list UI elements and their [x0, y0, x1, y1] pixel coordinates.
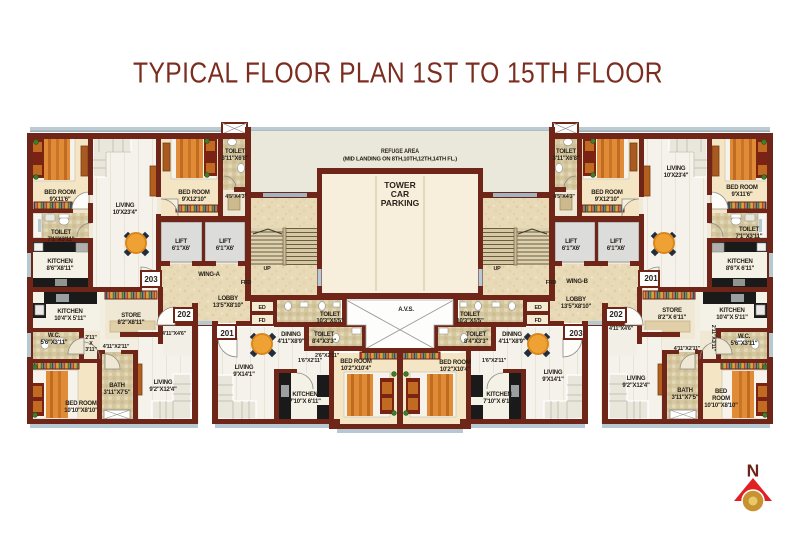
svg-text:9'X11'6": 9'X11'6" [49, 197, 70, 203]
svg-text:TOILET: TOILET [556, 149, 577, 155]
svg-text:2'6"X2'11": 2'6"X2'11" [315, 353, 340, 359]
svg-text:REFUGE AREA: REFUGE AREA [381, 148, 419, 155]
svg-text:201: 201 [644, 274, 658, 283]
svg-text:6'1"X6': 6'1"X6' [562, 246, 581, 252]
svg-text:ED: ED [534, 305, 541, 311]
svg-text:TOILET: TOILET [739, 227, 760, 233]
svg-text:LIVING: LIVING [544, 370, 563, 376]
svg-text:WING-B: WING-B [566, 279, 588, 285]
svg-text:LIVING: LIVING [235, 365, 254, 371]
svg-text:7'10"X 6'11": 7'10"X 6'11" [289, 399, 321, 405]
svg-text:4'11"X8'9": 4'11"X8'9" [499, 339, 526, 345]
svg-text:10'3"X5'5": 10'3"X5'5" [456, 319, 484, 325]
svg-text:FD: FD [259, 318, 266, 324]
svg-text:TOILET: TOILET [320, 312, 341, 318]
svg-text:4'5"X4'3": 4'5"X4'3" [225, 194, 247, 200]
svg-text:5'6"X3'11": 5'6"X3'11" [41, 340, 68, 346]
svg-text:10'4"X 5'11": 10'4"X 5'11" [54, 316, 86, 322]
svg-text:4'11"X2'11": 4'11"X2'11" [674, 346, 701, 352]
svg-text:BATH: BATH [109, 383, 124, 389]
svg-text:4'11"X8'9": 4'11"X8'9" [278, 339, 305, 345]
svg-text:8'6"X 6'11": 8'6"X 6'11" [726, 266, 755, 272]
svg-text:8'6"X8'11": 8'6"X8'11" [47, 266, 74, 272]
svg-text:LIFT: LIFT [610, 239, 622, 245]
svg-text:W.C.: W.C. [738, 334, 751, 340]
svg-text:N: N [747, 461, 760, 481]
svg-text:KITCHEN: KITCHEN [486, 392, 511, 398]
svg-text:ROOM: ROOM [712, 396, 730, 402]
svg-text:10'3"X5'5": 10'3"X5'5" [316, 319, 344, 325]
svg-text:7'1"X3'11": 7'1"X3'11" [48, 237, 75, 243]
svg-text:(MID LANDING ON 8TH,10TH,12TH,: (MID LANDING ON 8TH,10TH,12TH,14TH FL.) [343, 157, 457, 163]
svg-text:7'10"X 6'11": 7'10"X 6'11" [483, 399, 515, 405]
svg-text:202: 202 [609, 310, 623, 319]
svg-text:LIFT: LIFT [175, 239, 187, 245]
svg-text:4'11"X4'6": 4'11"X4'6" [162, 331, 187, 337]
svg-text:W.C.: W.C. [48, 333, 61, 339]
svg-text:TOILET: TOILET [314, 332, 335, 338]
svg-text:BED ROOM: BED ROOM [65, 401, 97, 407]
svg-text:KITCHEN: KITCHEN [47, 259, 72, 265]
svg-text:3'11": 3'11" [85, 347, 97, 353]
svg-text:KITCHEN: KITCHEN [727, 259, 752, 265]
svg-text:203: 203 [569, 329, 583, 338]
svg-text:TOILET: TOILET [225, 149, 246, 155]
svg-text:DINING: DINING [281, 332, 301, 338]
svg-text:TOILET: TOILET [460, 312, 481, 318]
svg-text:10'X23'4": 10'X23'4" [113, 210, 138, 216]
svg-text:9'X14'1": 9'X14'1" [542, 377, 564, 383]
svg-text:LIFT: LIFT [565, 239, 577, 245]
svg-text:LOBBY: LOBBY [218, 296, 238, 302]
svg-text:6'1"X6': 6'1"X6' [607, 246, 626, 252]
svg-text:UP: UP [493, 266, 501, 272]
svg-text:4'11"X4'6": 4'11"X4'6" [609, 326, 634, 332]
svg-text:STORE: STORE [662, 308, 682, 314]
svg-text:9'X11'6": 9'X11'6" [731, 192, 752, 198]
svg-text:8'2"X 6'11": 8'2"X 6'11" [658, 315, 687, 321]
svg-text:BED ROOM: BED ROOM [726, 185, 758, 191]
svg-text:2'11"X3'11": 2'11"X3'11" [710, 325, 716, 352]
svg-text:LIVING: LIVING [116, 203, 135, 209]
svg-text:FD: FD [535, 318, 542, 324]
svg-text:10'X23'4": 10'X23'4" [664, 173, 689, 179]
svg-text:KITCHEN: KITCHEN [57, 309, 82, 315]
svg-text:DINING: DINING [502, 332, 522, 338]
svg-text:3'11"X6'8": 3'11"X6'8" [553, 156, 580, 162]
svg-text:LIVING: LIVING [667, 166, 686, 172]
svg-text:TYPICAL FLOOR PLAN 1ST TO 15TH: TYPICAL FLOOR PLAN 1ST TO 15TH FLOOR [133, 58, 663, 90]
svg-text:KITCHEN: KITCHEN [719, 308, 744, 314]
svg-text:BED ROOM: BED ROOM [44, 190, 76, 196]
svg-text:TOILET: TOILET [466, 332, 487, 338]
svg-text:4'11"X2'11": 4'11"X2'11" [103, 344, 130, 350]
svg-text:LIVING: LIVING [154, 380, 173, 386]
svg-text:8'4"X3'3": 8'4"X3'3" [464, 339, 488, 345]
svg-text:10'10"X8'10": 10'10"X8'10" [704, 403, 738, 409]
svg-text:203: 203 [144, 275, 158, 284]
svg-text:UP: UP [263, 266, 271, 272]
svg-text:9'2"X12'4": 9'2"X12'4" [149, 387, 177, 393]
svg-text:6'1"X6': 6'1"X6' [216, 246, 235, 252]
svg-text:KITCHEN: KITCHEN [292, 392, 317, 398]
svg-text:13'5"X8'10": 13'5"X8'10" [213, 303, 244, 309]
svg-text:9'X12'10": 9'X12'10" [182, 197, 207, 203]
svg-text:BED ROOM: BED ROOM [591, 190, 623, 196]
svg-text:10'4"X 5'11": 10'4"X 5'11" [716, 315, 748, 321]
svg-text:FRD: FRD [546, 280, 557, 286]
svg-text:201: 201 [220, 329, 234, 338]
svg-text:BED ROOM: BED ROOM [340, 359, 372, 365]
svg-text:LIFT: LIFT [219, 239, 231, 245]
svg-text:10'2"X10'4": 10'2"X10'4" [341, 366, 372, 372]
svg-text:PARKING: PARKING [381, 198, 420, 208]
svg-text:10'10"X8'10": 10'10"X8'10" [64, 408, 98, 414]
svg-text:10'2"X10'4": 10'2"X10'4" [440, 367, 471, 373]
svg-text:LIVING: LIVING [627, 376, 646, 382]
svg-text:LOBBY: LOBBY [566, 297, 586, 303]
svg-text:WING-A: WING-A [198, 272, 220, 278]
svg-text:6'1"X6': 6'1"X6' [172, 246, 191, 252]
svg-text:FRD: FRD [241, 280, 252, 286]
svg-text:BED ROOM: BED ROOM [178, 190, 210, 196]
svg-text:STORE: STORE [121, 313, 141, 319]
svg-text:4'5"X4'3": 4'5"X4'3" [553, 194, 575, 200]
svg-text:3'11"X7'5": 3'11"X7'5" [672, 395, 699, 401]
svg-text:9'2"X12'4": 9'2"X12'4" [622, 383, 650, 389]
svg-text:3'11"X7'5": 3'11"X7'5" [104, 390, 131, 396]
svg-text:9'X12'10": 9'X12'10" [595, 197, 620, 203]
svg-text:9'X14'1": 9'X14'1" [233, 372, 255, 378]
svg-text:BATH: BATH [677, 388, 692, 394]
svg-text:8'4"X3'3": 8'4"X3'3" [312, 339, 336, 345]
svg-text:7'1"X3'11": 7'1"X3'11" [736, 234, 763, 240]
svg-text:8'2"X8'11": 8'2"X8'11" [118, 320, 145, 326]
svg-text:ED: ED [258, 305, 265, 311]
svg-text:TOILET: TOILET [51, 230, 72, 236]
svg-text:202: 202 [177, 310, 191, 319]
svg-text:13'5"X8'10": 13'5"X8'10" [561, 304, 592, 310]
svg-text:BED ROOM: BED ROOM [439, 360, 471, 366]
svg-text:A.V.S.: A.V.S. [398, 307, 414, 313]
svg-text:5'6"X3'11": 5'6"X3'11" [731, 341, 758, 347]
svg-text:BED: BED [715, 389, 728, 395]
svg-text:1'6"X2'11": 1'6"X2'11" [482, 358, 507, 364]
svg-text:3'11"X6'8": 3'11"X6'8" [222, 156, 249, 162]
